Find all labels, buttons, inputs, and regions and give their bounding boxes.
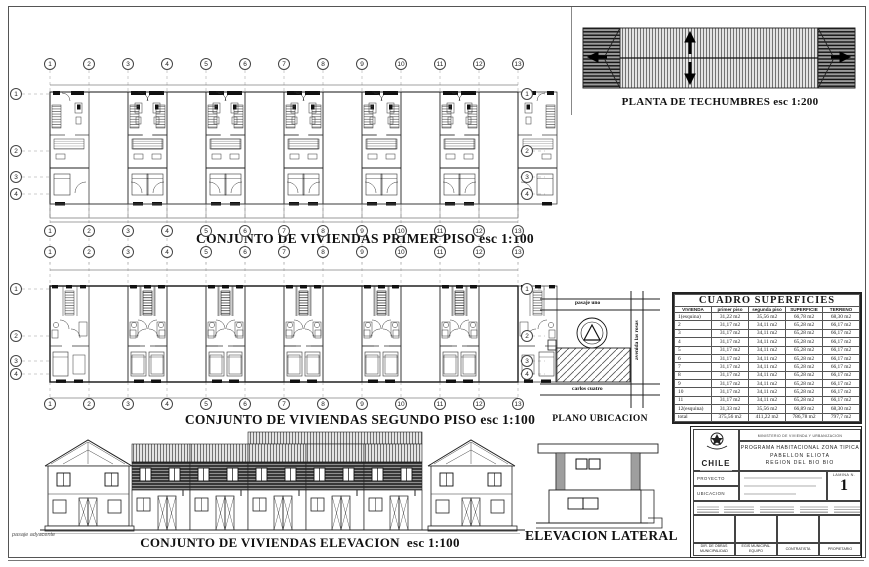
surfaces-table-row: 231,17 m234,11 m265,28 m266,17 m2 bbox=[675, 321, 860, 329]
surfaces-table-cell: 31,17 m2 bbox=[712, 380, 749, 388]
surfaces-table-cell: 66,17 m2 bbox=[823, 338, 860, 346]
grid-bubble-13: 13 bbox=[512, 225, 524, 237]
grid-bubble-5: 5 bbox=[200, 225, 212, 237]
title-plano-ubicacion-text: PLANO UBICACION bbox=[552, 414, 648, 424]
grid-bubble-13: 13 bbox=[512, 58, 524, 70]
program-line1: PROGRAMA HABITACIONAL ZONA TIPICA bbox=[740, 445, 860, 451]
surfaces-table-cell: 11 bbox=[675, 396, 712, 404]
surfaces-table-cell: 66,17 m2 bbox=[823, 354, 860, 362]
surfaces-table-cell: 31,17 m2 bbox=[712, 346, 749, 354]
title-block: CHILE MINISTERIO DE VIVIENDA Y URBANIZAC… bbox=[690, 426, 862, 558]
surfaces-table-cell: 68,30 m2 bbox=[823, 405, 860, 413]
surfaces-table-cell: 3 bbox=[675, 329, 712, 337]
proyecto-cell: PROYECTO bbox=[693, 471, 739, 486]
surfaces-table-cell: 65,28 m2 bbox=[786, 380, 823, 388]
grid-bubble-3: 3 bbox=[10, 171, 22, 183]
grid-bubble-7: 7 bbox=[278, 398, 290, 410]
surfaces-table-cell: 31,17 m2 bbox=[712, 338, 749, 346]
surfaces-table-cell: 411,22 m2 bbox=[749, 413, 786, 422]
surfaces-table-cell: 10 bbox=[675, 388, 712, 396]
surfaces-table-cell: 31,17 m2 bbox=[712, 388, 749, 396]
signature-space-1 bbox=[693, 515, 735, 543]
logo-country-label: CHILE bbox=[694, 459, 738, 468]
surfaces-table-cell: 9 bbox=[675, 380, 712, 388]
grid-bubble-3: 3 bbox=[122, 58, 134, 70]
grid-bubble-2: 2 bbox=[521, 145, 533, 157]
grid-bubble-10: 10 bbox=[395, 398, 407, 410]
surfaces-table-cell: 797,7 m2 bbox=[823, 413, 860, 422]
surfaces-table-row: 1131,17 m234,11 m265,28 m266,17 m2 bbox=[675, 396, 860, 404]
title-elevacion-lateral: ELEVACION LATERAL bbox=[525, 528, 675, 544]
grid-bubble-5: 5 bbox=[200, 246, 212, 258]
grid-bubble-10: 10 bbox=[395, 225, 407, 237]
grid-bubble-4: 4 bbox=[161, 398, 173, 410]
surfaces-table-row: 331,17 m234,11 m265,28 m266,17 m2 bbox=[675, 329, 860, 337]
grid-bubble-4: 4 bbox=[161, 246, 173, 258]
grid-bubble-4: 4 bbox=[10, 368, 22, 380]
surfaces-table-cell: 34,11 m2 bbox=[749, 380, 786, 388]
title-plano-ubicacion: PLANO UBICACION bbox=[535, 414, 665, 424]
grid-bubble-9: 9 bbox=[356, 58, 368, 70]
grid-bubble-5: 5 bbox=[200, 58, 212, 70]
chile-coat-of-arms-icon bbox=[694, 430, 740, 454]
lateral-elevation bbox=[536, 444, 662, 528]
surfaces-table-header: SUPERFICIE bbox=[786, 307, 823, 313]
signature-label-3-text: CONTRATISTA bbox=[778, 547, 818, 552]
grid-bubble-3: 3 bbox=[521, 355, 533, 367]
surfaces-table-cell: 31,17 m2 bbox=[712, 329, 749, 337]
first-floor-plan bbox=[50, 91, 557, 218]
program-line3: REGION DEL BIO BIO bbox=[740, 460, 860, 466]
signature-label-2: EGIS MUNICIPAL EQUIPO bbox=[735, 543, 777, 556]
surfaces-table-cell: 31,17 m2 bbox=[712, 354, 749, 362]
grid-bubble-6: 6 bbox=[239, 225, 251, 237]
grid-bubble-3: 3 bbox=[122, 398, 134, 410]
second-floor-plan bbox=[50, 285, 557, 383]
surfaces-table-cell: 65,28 m2 bbox=[786, 388, 823, 396]
ubicacion-label: UBICACION bbox=[697, 491, 738, 496]
surfaces-table-cell: 66,17 m2 bbox=[823, 371, 860, 379]
grid-bubble-11: 11 bbox=[434, 398, 446, 410]
grid-bubble-4: 4 bbox=[161, 58, 173, 70]
grid-bubble-1: 1 bbox=[521, 283, 533, 295]
surfaces-table-cell: 34,11 m2 bbox=[749, 329, 786, 337]
grid-bubble-4: 4 bbox=[161, 225, 173, 237]
grid-bubble-2: 2 bbox=[83, 225, 95, 237]
surfaces-table-cell: 66,17 m2 bbox=[823, 363, 860, 371]
surfaces-table-cell: 35,56 m2 bbox=[749, 313, 786, 321]
grid-bubble-9: 9 bbox=[356, 225, 368, 237]
grid-bubble-11: 11 bbox=[434, 58, 446, 70]
surfaces-table-cell: 31,17 m2 bbox=[712, 396, 749, 404]
surfaces-table-cell: 12(esquina) bbox=[675, 405, 712, 413]
surfaces-table-cell: 375,56 m2 bbox=[712, 413, 749, 422]
surfaces-table-cell: total bbox=[675, 413, 712, 422]
surfaces-table-cell: 34,11 m2 bbox=[749, 354, 786, 362]
ministry-label: MINISTERIO DE VIVIENDA Y URBANIZACION bbox=[749, 433, 851, 437]
surfaces-table-row: 1(esquina)31,22 m235,56 m266,78 m268,30 … bbox=[675, 313, 860, 321]
grid-bubble-2: 2 bbox=[10, 330, 22, 342]
grid-bubble-12: 12 bbox=[473, 246, 485, 258]
grid-bubble-11: 11 bbox=[434, 246, 446, 258]
surfaces-table-cell: 34,11 m2 bbox=[749, 363, 786, 371]
surfaces-table-cell: 66,89 m2 bbox=[786, 405, 823, 413]
grid-bubble-2: 2 bbox=[83, 398, 95, 410]
grid-bubble-8: 8 bbox=[317, 398, 329, 410]
grid-bubble-3: 3 bbox=[122, 225, 134, 237]
meta-blur-1 bbox=[697, 505, 719, 513]
grid-bubble-8: 8 bbox=[317, 58, 329, 70]
title-elevacion-text: CONJUNTO DE VIVIENDAS ELEVACION bbox=[140, 535, 400, 550]
grid-bubble-8: 8 bbox=[317, 246, 329, 258]
grid-bubble-9: 9 bbox=[356, 398, 368, 410]
grid-bubble-6: 6 bbox=[239, 58, 251, 70]
signature-label-3: CONTRATISTA bbox=[777, 543, 819, 556]
surfaces-table: CUADRO SUPERFICIES VIVIENDAprimer pisose… bbox=[672, 292, 862, 424]
surfaces-table-header: primer piso bbox=[712, 307, 749, 313]
surfaces-table-cell: 68,30 m2 bbox=[823, 313, 860, 321]
meta-band bbox=[693, 501, 861, 515]
title-elevacion-scale: esc 1:100 bbox=[407, 535, 460, 550]
surfaces-table-row: 1031,17 m234,11 m265,28 m266,17 m2 bbox=[675, 388, 860, 396]
ubicacion-cell: UBICACION bbox=[693, 486, 739, 501]
surfaces-table-cell: 34,11 m2 bbox=[749, 338, 786, 346]
meta-blur-4 bbox=[800, 505, 828, 513]
surfaces-table-header-row: VIVIENDAprimer pisosegunda pisoSUPERFICI… bbox=[675, 307, 860, 313]
grid-bubble-12: 12 bbox=[473, 58, 485, 70]
title-techumbres-scale: esc 1:200 bbox=[773, 96, 818, 108]
description-blur-2 bbox=[744, 484, 816, 488]
grid-bubble-2: 2 bbox=[83, 58, 95, 70]
program-line2: PABELLON ELIOTA bbox=[740, 453, 860, 459]
signature-label-2-text: EGIS MUNICIPAL EQUIPO bbox=[736, 544, 776, 554]
grid-bubble-9: 9 bbox=[356, 246, 368, 258]
signature-space-3 bbox=[777, 515, 819, 543]
program-cell: PROGRAMA HABITACIONAL ZONA TIPICA PABELL… bbox=[739, 441, 861, 471]
surfaces-table-cell: 65,28 m2 bbox=[786, 396, 823, 404]
surfaces-table-cell: 65,28 m2 bbox=[786, 329, 823, 337]
grid-bubble-7: 7 bbox=[278, 58, 290, 70]
grid-bubble-1: 1 bbox=[10, 283, 22, 295]
grid-bubble-2: 2 bbox=[83, 246, 95, 258]
signature-label-1-text: DIR. DE OBRAS MUNICIPALIDAD bbox=[694, 544, 734, 554]
grid-bubble-2: 2 bbox=[10, 145, 22, 157]
surfaces-table-row: 631,17 m234,11 m265,28 m266,17 m2 bbox=[675, 354, 860, 362]
grid-bubble-13: 13 bbox=[512, 398, 524, 410]
grid-bubble-1: 1 bbox=[44, 246, 56, 258]
title-segundo-piso-text: CONJUNTO DE VIVIENDAS SEGUNDO PISO bbox=[185, 412, 477, 427]
surfaces-table-cell: 34,11 m2 bbox=[749, 371, 786, 379]
surfaces-table-title: CUADRO SUPERFICIES bbox=[675, 295, 860, 307]
description-blur-3 bbox=[744, 492, 796, 496]
roof-plan bbox=[583, 28, 855, 103]
surfaces-table-cell: 2 bbox=[675, 321, 712, 329]
surfaces-table-cell: 65,28 m2 bbox=[786, 354, 823, 362]
title-techumbres-text: PLANTA DE TECHUMBRES bbox=[622, 96, 771, 108]
surfaces-table-row: 931,17 m234,11 m265,28 m266,17 m2 bbox=[675, 380, 860, 388]
grid-bubble-11: 11 bbox=[434, 225, 446, 237]
surfaces-table-header: segunda piso bbox=[749, 307, 786, 313]
surfaces-table-cell: 8 bbox=[675, 371, 712, 379]
surfaces-table-cell: 34,11 m2 bbox=[749, 388, 786, 396]
surfaces-table-cell: 4 bbox=[675, 338, 712, 346]
surfaces-table-row: 12(esquina)31,33 m235,56 m266,89 m268,30… bbox=[675, 405, 860, 413]
surfaces-table-cell: 31,17 m2 bbox=[712, 363, 749, 371]
signature-label-4: PROPIETARIO bbox=[819, 543, 861, 556]
meta-blur-2 bbox=[724, 505, 754, 513]
grid-bubble-4: 4 bbox=[521, 188, 533, 200]
surfaces-table-cell: 65,28 m2 bbox=[786, 321, 823, 329]
grid-bubble-7: 7 bbox=[278, 225, 290, 237]
grid-bubble-3: 3 bbox=[122, 246, 134, 258]
street-label-top: pasaje uno bbox=[575, 300, 600, 306]
surfaces-table-cell: 34,11 m2 bbox=[749, 346, 786, 354]
surfaces-table-row: 731,17 m234,11 m265,28 m266,17 m2 bbox=[675, 363, 860, 371]
surfaces-table-cell: 65,28 m2 bbox=[786, 363, 823, 371]
surfaces-table-row: 431,17 m234,11 m265,28 m266,17 m2 bbox=[675, 338, 860, 346]
grid-bubble-8: 8 bbox=[317, 225, 329, 237]
lamina-cell: LAMINA N. 1 bbox=[827, 471, 861, 501]
grid-bubble-6: 6 bbox=[239, 246, 251, 258]
title-elevacion-lateral-text: ELEVACION LATERAL bbox=[525, 528, 678, 543]
drawing-sheet: CONJUNTO DE VIVIENDAS PRIMER PISO esc 1:… bbox=[0, 0, 869, 567]
surfaces-table-cell: 66,17 m2 bbox=[823, 380, 860, 388]
surfaces-table-cell: 31,17 m2 bbox=[712, 321, 749, 329]
surfaces-table-cell: 66,17 m2 bbox=[823, 329, 860, 337]
surfaces-table-cell: 34,11 m2 bbox=[749, 321, 786, 329]
grid-bubble-1: 1 bbox=[10, 88, 22, 100]
grid-bubble-12: 12 bbox=[473, 398, 485, 410]
title-primer-piso-scale: esc 1:100 bbox=[479, 231, 534, 246]
surfaces-table-cell: 5 bbox=[675, 346, 712, 354]
surfaces-table-cell: 34,11 m2 bbox=[749, 396, 786, 404]
meta-blur-3 bbox=[760, 505, 794, 513]
surfaces-table-cell: 65,28 m2 bbox=[786, 346, 823, 354]
surfaces-table-row: 531,17 m234,11 m265,28 m266,17 m2 bbox=[675, 346, 860, 354]
title-elevacion: CONJUNTO DE VIVIENDAS ELEVACION esc 1:10… bbox=[75, 535, 525, 551]
meta-blur-5 bbox=[834, 505, 860, 513]
ministry-cell: MINISTERIO DE VIVIENDA Y URBANIZACION bbox=[739, 429, 861, 441]
front-elevation bbox=[40, 432, 525, 534]
surfaces-table-cell: 66,17 m2 bbox=[823, 346, 860, 354]
surfaces-table-row: total375,56 m2411,22 m2786,78 m2797,7 m2 bbox=[675, 413, 860, 422]
surfaces-table-cell: 66,17 m2 bbox=[823, 396, 860, 404]
description-blur-1 bbox=[744, 476, 822, 480]
surfaces-table-cell: 31,33 m2 bbox=[712, 405, 749, 413]
logo-cell: CHILE bbox=[693, 429, 739, 471]
grid-bubble-10: 10 bbox=[395, 246, 407, 258]
surfaces-table-cell: 786,78 m2 bbox=[786, 413, 823, 422]
grid-bubble-5: 5 bbox=[200, 398, 212, 410]
street-label-bottom: carlos cuatro bbox=[572, 386, 603, 392]
surfaces-table-cell: 35,56 m2 bbox=[749, 405, 786, 413]
surfaces-table-cell: 66,17 m2 bbox=[823, 321, 860, 329]
grid-bubble-4: 4 bbox=[521, 368, 533, 380]
grid-bubble-4: 4 bbox=[10, 188, 22, 200]
grid-bubble-1: 1 bbox=[44, 225, 56, 237]
lamina-number: 1 bbox=[828, 477, 860, 495]
grid-bubble-3: 3 bbox=[10, 355, 22, 367]
description-cell bbox=[739, 471, 827, 501]
signature-space-4 bbox=[819, 515, 861, 543]
surfaces-table-cell: 1(esquina) bbox=[675, 313, 712, 321]
surfaces-table-cell: 31,22 m2 bbox=[712, 313, 749, 321]
signature-label-4-text: PROPIETARIO bbox=[820, 547, 860, 552]
proyecto-label: PROYECTO bbox=[697, 476, 738, 481]
grid-bubble-6: 6 bbox=[239, 398, 251, 410]
surfaces-table-cell: 66,17 m2 bbox=[823, 388, 860, 396]
grid-bubble-12: 12 bbox=[473, 225, 485, 237]
street-label-right: avenida las rosas bbox=[634, 320, 640, 360]
grid-bubble-1: 1 bbox=[521, 88, 533, 100]
surfaces-table-cell: 31,17 m2 bbox=[712, 371, 749, 379]
surfaces-table-row: 831,17 m234,11 m265,28 m266,17 m2 bbox=[675, 371, 860, 379]
surfaces-table-cell: 65,28 m2 bbox=[786, 371, 823, 379]
surfaces-table-cell: 65,28 m2 bbox=[786, 338, 823, 346]
signature-space-2 bbox=[735, 515, 777, 543]
surfaces-table-cell: 6 bbox=[675, 354, 712, 362]
grid-bubble-1: 1 bbox=[44, 398, 56, 410]
surfaces-table-cell: 66,78 m2 bbox=[786, 313, 823, 321]
grid-bubble-1: 1 bbox=[44, 58, 56, 70]
grid-bubble-13: 13 bbox=[512, 246, 524, 258]
margin-note: pasaje adyacente bbox=[12, 532, 55, 538]
grid-bubble-2: 2 bbox=[521, 330, 533, 342]
title-segundo-piso-scale: esc 1:100 bbox=[480, 412, 535, 427]
signature-label-1: DIR. DE OBRAS MUNICIPALIDAD bbox=[693, 543, 735, 556]
grid-bubble-10: 10 bbox=[395, 58, 407, 70]
surfaces-table-cell: 7 bbox=[675, 363, 712, 371]
title-techumbres: PLANTA DE TECHUMBRES esc 1:200 bbox=[595, 96, 845, 108]
grid-bubble-7: 7 bbox=[278, 246, 290, 258]
grid-bubble-3: 3 bbox=[521, 171, 533, 183]
